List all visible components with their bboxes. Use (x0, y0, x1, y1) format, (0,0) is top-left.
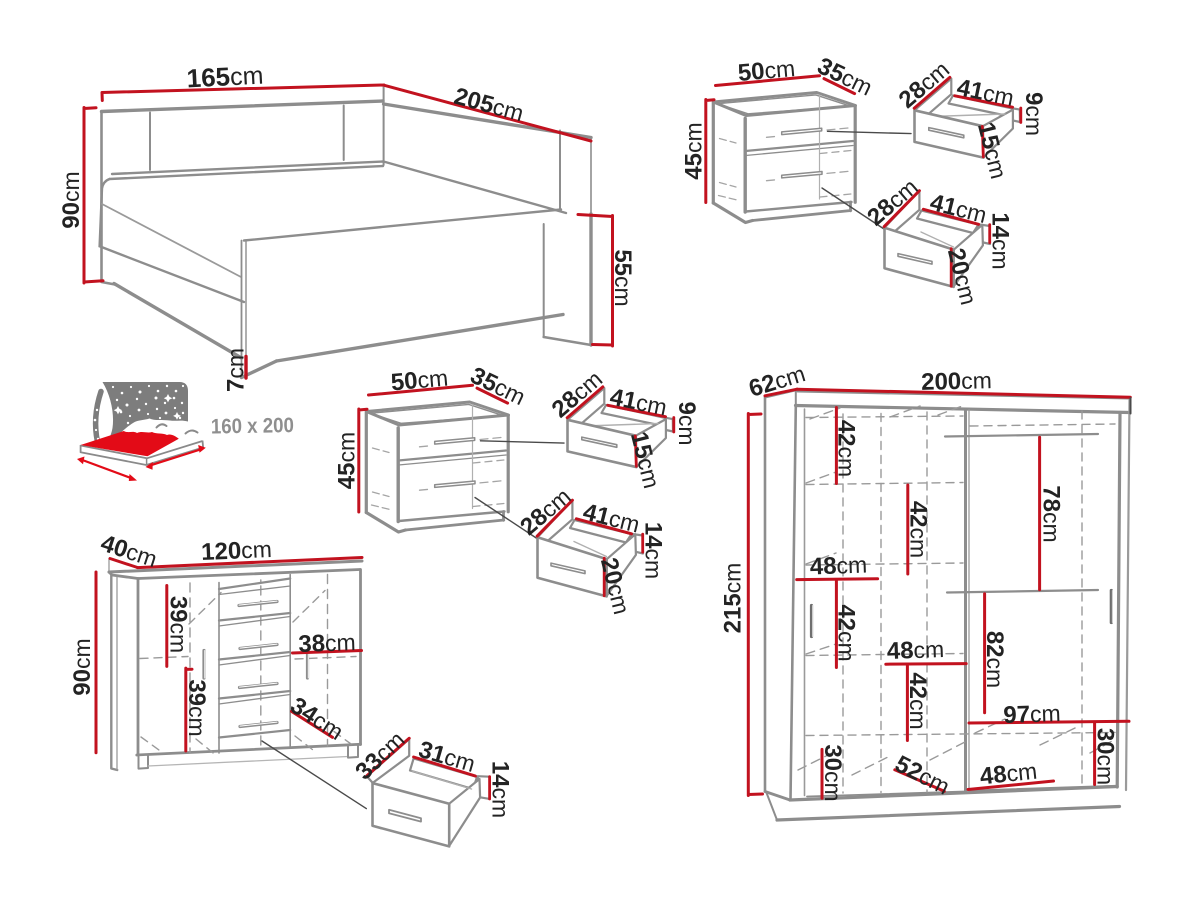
svg-text:30cm: 30cm (1092, 728, 1119, 785)
svg-text:48cm: 48cm (809, 552, 867, 581)
svg-text:39cm: 39cm (183, 679, 210, 736)
svg-text:45cm: 45cm (681, 122, 708, 179)
svg-text:165cm: 165cm (186, 60, 264, 94)
svg-text:9cm: 9cm (1020, 92, 1047, 136)
svg-text:200cm: 200cm (921, 367, 992, 396)
svg-text:82cm: 82cm (981, 631, 1008, 688)
svg-text:14cm: 14cm (487, 761, 514, 818)
svg-text:42cm: 42cm (905, 501, 932, 558)
svg-text:160 x 200: 160 x 200 (211, 414, 294, 438)
svg-text:30cm: 30cm (819, 744, 846, 801)
svg-text:90cm: 90cm (69, 638, 96, 695)
svg-text:215cm: 215cm (720, 563, 747, 634)
svg-text:42cm: 42cm (833, 604, 860, 661)
svg-text:39cm: 39cm (165, 596, 192, 653)
svg-text:55cm: 55cm (609, 249, 636, 306)
svg-text:14cm: 14cm (987, 212, 1014, 269)
svg-text:97cm: 97cm (1003, 700, 1061, 729)
svg-text:48cm: 48cm (886, 636, 944, 665)
svg-text:120cm: 120cm (201, 536, 273, 566)
svg-text:7cm: 7cm (223, 348, 250, 392)
svg-text:90cm: 90cm (58, 171, 85, 228)
svg-text:42cm: 42cm (833, 420, 860, 477)
svg-text:42cm: 42cm (904, 672, 931, 729)
svg-text:78cm: 78cm (1038, 485, 1065, 542)
svg-text:38cm: 38cm (298, 629, 356, 658)
